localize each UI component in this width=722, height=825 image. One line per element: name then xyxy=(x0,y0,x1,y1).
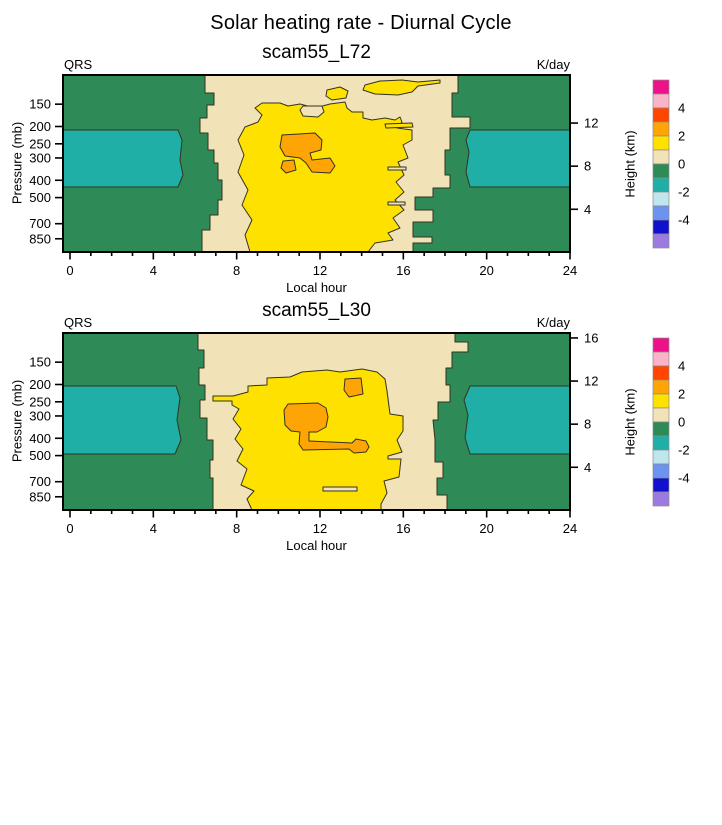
colorbar-label: -4 xyxy=(678,471,690,486)
colorbar-cell xyxy=(653,464,669,478)
panel1-units-label: K/day xyxy=(63,57,570,72)
x-tick-label: 20 xyxy=(479,521,493,536)
colorbar-label: 2 xyxy=(678,129,685,144)
colorbar-cell xyxy=(653,478,669,492)
x-tick-label: 0 xyxy=(66,263,73,278)
colorbar-label: 4 xyxy=(678,101,685,116)
colorbar-cell xyxy=(653,122,669,136)
height-tick-label: 4 xyxy=(584,460,591,475)
colorbar-label: 4 xyxy=(678,359,685,374)
figure: 1502002503004005007008501284048121620244… xyxy=(0,0,722,825)
colorbar-label: 0 xyxy=(678,157,685,172)
l72-region-teal-right xyxy=(466,130,570,187)
l30-region-wheat-dash-a xyxy=(323,487,357,491)
x-tick-label: 0 xyxy=(66,521,73,536)
colorbar-cell xyxy=(653,450,669,464)
colorbar-cell xyxy=(653,394,669,408)
pressure-tick-label: 700 xyxy=(29,474,51,489)
pressure-tick-label: 500 xyxy=(29,448,51,463)
colorbar-cell xyxy=(653,206,669,220)
height-tick-label: 8 xyxy=(584,417,591,432)
panel-l30: 1502002503004005007008501612840481216202… xyxy=(29,330,598,536)
pressure-tick-label: 300 xyxy=(29,150,51,165)
colorbar-cell xyxy=(653,234,669,248)
l30-region-teal-right xyxy=(464,386,570,454)
colorbar-label: -4 xyxy=(678,213,690,228)
panel2-x-axis-title: Local hour xyxy=(63,538,570,553)
height-tick-label: 12 xyxy=(584,116,598,131)
colorbar-cell xyxy=(653,366,669,380)
pressure-tick-label: 300 xyxy=(29,408,51,423)
panel2-height-axis-title: Height (km) xyxy=(623,388,638,455)
x-tick-label: 20 xyxy=(479,263,493,278)
x-tick-label: 24 xyxy=(563,521,577,536)
panel2-pressure-axis-title: Pressure (mb) xyxy=(10,380,25,462)
pressure-tick-label: 700 xyxy=(29,216,51,231)
colorbar-cell xyxy=(653,422,669,436)
colorbar-label: -2 xyxy=(678,185,690,200)
x-tick-label: 12 xyxy=(313,521,327,536)
colorbar-cell xyxy=(653,108,669,122)
colorbar-cell xyxy=(653,178,669,192)
pressure-tick-label: 400 xyxy=(29,173,51,188)
x-tick-label: 16 xyxy=(396,263,410,278)
colorbar-cell xyxy=(653,192,669,206)
pressure-tick-label: 200 xyxy=(29,377,51,392)
pressure-tick-label: 400 xyxy=(29,431,51,446)
l30-colorbar: 420-2-4 xyxy=(653,338,690,506)
l72-region-yellow-island-c xyxy=(385,123,413,128)
colorbar-label: -2 xyxy=(678,443,690,458)
colorbar-cell xyxy=(653,136,669,150)
x-tick-label: 8 xyxy=(233,521,240,536)
panel1-pressure-axis-title: Pressure (mb) xyxy=(10,122,25,204)
panel1-height-axis-title: Height (km) xyxy=(623,130,638,197)
height-tick-label: 4 xyxy=(584,202,591,217)
pressure-tick-label: 850 xyxy=(29,489,51,504)
l72-region-teal-left xyxy=(63,130,183,187)
height-tick-label: 8 xyxy=(584,159,591,174)
pressure-tick-label: 250 xyxy=(29,136,51,151)
colorbar-cell xyxy=(653,408,669,422)
main-title: Solar heating rate - Diurnal Cycle xyxy=(0,12,722,35)
x-tick-label: 8 xyxy=(233,263,240,278)
l72-region-wheat-dash-b xyxy=(388,202,405,205)
pressure-tick-label: 200 xyxy=(29,119,51,134)
x-tick-label: 4 xyxy=(150,521,157,536)
l72-region-wheat-hole xyxy=(300,106,324,117)
panel2-units-label: K/day xyxy=(63,315,570,330)
colorbar-cell xyxy=(653,80,669,94)
panel-l72: 150200250300400500700850128404812162024 xyxy=(29,75,598,278)
x-tick-label: 24 xyxy=(563,263,577,278)
colorbar-cell xyxy=(653,492,669,506)
l72-region-wheat-dash-a xyxy=(388,167,406,170)
colorbar-cell xyxy=(653,436,669,450)
pressure-tick-label: 500 xyxy=(29,190,51,205)
colorbar-cell xyxy=(653,94,669,108)
l72-colorbar: 420-2-4 xyxy=(653,80,690,248)
colorbar-cell xyxy=(653,338,669,352)
colorbar-cell xyxy=(653,164,669,178)
colorbar-label: 2 xyxy=(678,387,685,402)
panel1-x-axis-title: Local hour xyxy=(63,280,570,295)
colorbar-cell xyxy=(653,150,669,164)
pressure-tick-label: 150 xyxy=(29,97,51,112)
pressure-tick-label: 250 xyxy=(29,394,51,409)
pressure-tick-label: 850 xyxy=(29,231,51,246)
colorbar-label: 0 xyxy=(678,415,685,430)
x-tick-label: 12 xyxy=(313,263,327,278)
x-tick-label: 16 xyxy=(396,521,410,536)
x-tick-label: 4 xyxy=(150,263,157,278)
colorbar-cell xyxy=(653,220,669,234)
colorbar-cell xyxy=(653,352,669,366)
height-tick-label: 16 xyxy=(584,330,598,345)
l30-region-teal-left xyxy=(63,386,181,454)
height-tick-label: 12 xyxy=(584,374,598,389)
colorbar-cell xyxy=(653,380,669,394)
contour-plot-canvas: 1502002503004005007008501284048121620244… xyxy=(0,0,722,825)
pressure-tick-label: 150 xyxy=(29,355,51,370)
l30-region-orange-island xyxy=(344,378,363,397)
